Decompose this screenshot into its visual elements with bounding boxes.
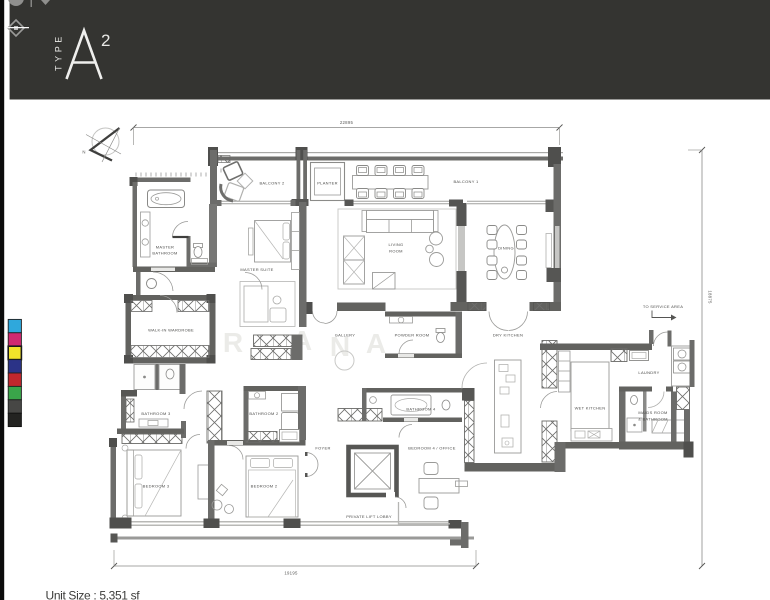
svg-text:POWDER ROOM: POWDER ROOM xyxy=(395,333,430,338)
svg-text:WALK-IN WARDROBE: WALK-IN WARDROBE xyxy=(148,328,194,333)
svg-text:MAIDS ROOM: MAIDS ROOM xyxy=(638,410,667,415)
svg-text:TYPE: TYPE xyxy=(54,33,64,71)
svg-text:ROOM: ROOM xyxy=(389,249,403,254)
svg-text:BALCONY 2: BALCONY 2 xyxy=(259,181,285,186)
svg-text:BATHROOM 2: BATHROOM 2 xyxy=(249,411,279,416)
svg-text:BEDROOM 4 / OFFICE: BEDROOM 4 / OFFICE xyxy=(408,446,455,451)
svg-text:18875: 18875 xyxy=(708,290,713,304)
svg-text:MASTER: MASTER xyxy=(156,245,174,250)
svg-text:BATHROOM 3: BATHROOM 3 xyxy=(141,411,171,416)
svg-text:19195: 19195 xyxy=(284,571,298,576)
svg-text:A: A xyxy=(366,328,386,359)
svg-text:BEDROOM 2: BEDROOM 2 xyxy=(251,484,278,489)
svg-text:2: 2 xyxy=(101,31,110,50)
svg-text:LIVING: LIVING xyxy=(389,242,404,247)
svg-text:R: R xyxy=(223,327,243,358)
svg-text:BATHROOM 4: BATHROOM 4 xyxy=(406,407,436,412)
svg-text:WET KITCHEN: WET KITCHEN xyxy=(575,406,606,411)
svg-text:PLANTER: PLANTER xyxy=(317,181,338,186)
svg-text:DRY KITCHEN: DRY KITCHEN xyxy=(493,333,523,338)
svg-text:LAUNDRY: LAUNDRY xyxy=(638,370,659,375)
svg-text:FOYER: FOYER xyxy=(315,446,330,451)
svg-text:N: N xyxy=(330,331,350,362)
svg-text:Unit Size : 5,351 sf: Unit Size : 5,351 sf xyxy=(46,589,141,600)
svg-text:TO SERVICE AREA: TO SERVICE AREA xyxy=(643,304,683,309)
svg-text:22895: 22895 xyxy=(340,120,354,125)
svg-text:& BATHROOM: & BATHROOM xyxy=(638,417,668,422)
svg-text:BALCONY 1: BALCONY 1 xyxy=(453,179,479,184)
svg-text:MASTER SUITE: MASTER SUITE xyxy=(240,267,273,272)
svg-text:BATHROOM: BATHROOM xyxy=(152,251,177,256)
svg-text:PRIVATE LIFT LOBBY: PRIVATE LIFT LOBBY xyxy=(346,514,392,519)
svg-text:BEDROOM 3: BEDROOM 3 xyxy=(143,484,170,489)
svg-text:N: N xyxy=(82,150,85,155)
svg-text:DINING: DINING xyxy=(498,246,514,251)
